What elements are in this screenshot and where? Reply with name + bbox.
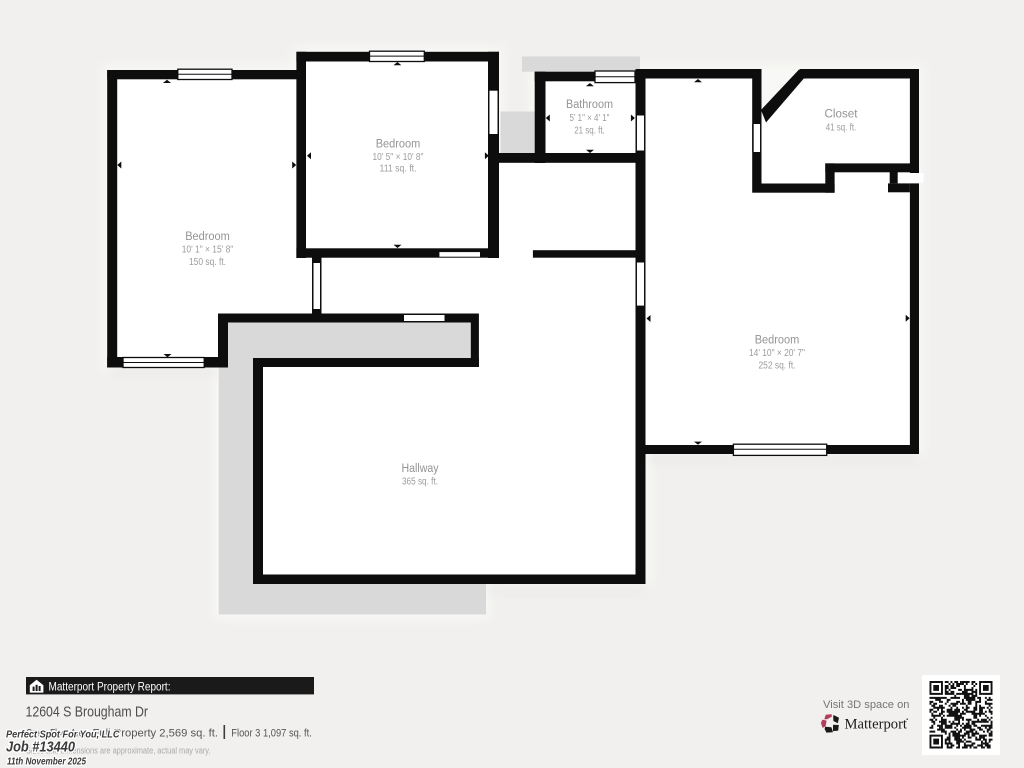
svg-text:150 sq. ft.: 150 sq. ft. <box>189 257 226 268</box>
svg-text:Matterport Property Report:: Matterport Property Report: <box>49 680 171 694</box>
svg-text:Bathroom: Bathroom <box>566 99 613 111</box>
svg-text:Hallway: Hallway <box>402 463 439 475</box>
svg-text:Floor 3 1,097 sq. ft.: Floor 3 1,097 sq. ft. <box>231 728 311 740</box>
svg-text:Bedroom: Bedroom <box>755 335 800 347</box>
svg-text:10' 5" × 10' 8": 10' 5" × 10' 8" <box>373 152 424 163</box>
svg-text:21 sq. ft.: 21 sq. ft. <box>574 126 605 137</box>
svg-text:365 sq. ft.: 365 sq. ft. <box>402 477 438 488</box>
svg-text:252 sq. ft.: 252 sq. ft. <box>759 361 796 372</box>
svg-text:Visit 3D space on: Visit 3D space on <box>823 699 910 711</box>
svg-text:12604 S Brougham Dr: 12604 S Brougham Dr <box>26 704 149 721</box>
svg-text:111 sq. ft.: 111 sq. ft. <box>380 164 417 175</box>
svg-text:Matterport: Matterport <box>845 717 908 733</box>
svg-text:Bedroom: Bedroom <box>376 139 421 151</box>
svg-text:5' 1" × 4' 1": 5' 1" × 4' 1" <box>570 113 610 124</box>
svg-text:Job #13440: Job #13440 <box>6 740 75 756</box>
svg-text:10' 1" × 15' 8": 10' 1" × 15' 8" <box>182 245 234 256</box>
svg-text:41 sq. ft.: 41 sq. ft. <box>826 123 857 134</box>
svg-text:Bedroom: Bedroom <box>185 231 230 243</box>
svg-text:14' 10" × 20' 7": 14' 10" × 20' 7" <box>749 348 805 359</box>
svg-text:Closet: Closet <box>825 109 859 121</box>
svg-text:11th November 2025: 11th November 2025 <box>7 756 86 768</box>
